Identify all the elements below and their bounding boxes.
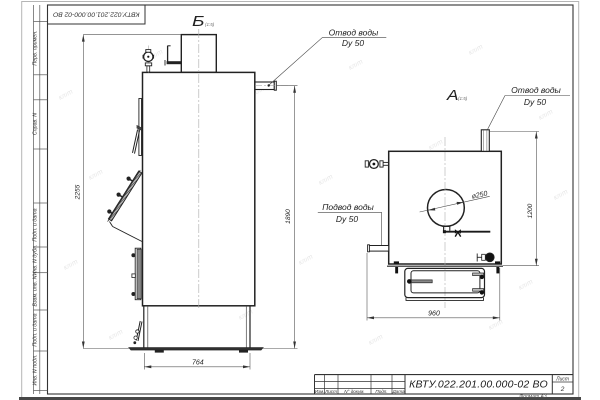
svg-text:Перв. примен.: Перв. примен. — [33, 30, 39, 65]
svg-text:Лист: Лист — [555, 377, 569, 383]
svg-text:Dy 50: Dy 50 — [342, 38, 364, 48]
svg-text:1200: 1200 — [527, 203, 534, 218]
svg-text:(1:5): (1:5) — [458, 96, 468, 101]
svg-text:А: А — [446, 88, 459, 104]
svg-text:Формат А3: Формат А3 — [519, 394, 547, 400]
svg-text:Справ. N: Справ. N — [33, 113, 39, 135]
svg-text:2255: 2255 — [75, 184, 82, 200]
svg-text:Изм.: Изм. — [315, 389, 325, 394]
svg-text:Лист: Лист — [324, 389, 337, 394]
svg-text:Б: Б — [192, 14, 205, 30]
svg-text:N° докум.: N° докум. — [344, 389, 364, 394]
svg-text:Подп.: Подп. — [375, 389, 387, 394]
svg-text:Взам. инв. N: Взам. инв. N — [33, 275, 39, 306]
svg-text:Подп. и дата: Подп. и дата — [33, 208, 39, 241]
svg-text:Инв. N подл.: Инв. N подл. — [33, 355, 39, 386]
svg-text:Отвод воды: Отвод воды — [329, 28, 379, 38]
svg-text:(1:5): (1:5) — [205, 22, 215, 27]
svg-text:960: 960 — [428, 311, 440, 318]
svg-text:2: 2 — [560, 386, 565, 393]
svg-text:КВТУ.022.201.00.000-02 ВО: КВТУ.022.201.00.000-02 ВО — [52, 11, 139, 18]
svg-text:1890: 1890 — [285, 209, 292, 224]
svg-text:764: 764 — [192, 359, 204, 366]
svg-text:Dy 50: Dy 50 — [336, 214, 358, 224]
svg-text:КВТУ.022.201.00.000-02 ВО: КВТУ.022.201.00.000-02 ВО — [409, 379, 548, 391]
svg-text:Дата: Дата — [391, 389, 405, 394]
svg-text:Подп. и дата: Подп. и дата — [33, 313, 39, 346]
svg-text:Подвод воды: Подвод воды — [322, 202, 374, 212]
svg-text:Отвод воды: Отвод воды — [511, 85, 561, 95]
svg-text:Инв. N дубл.: Инв. N дубл. — [33, 245, 39, 276]
svg-text:Dy 50: Dy 50 — [524, 97, 546, 107]
